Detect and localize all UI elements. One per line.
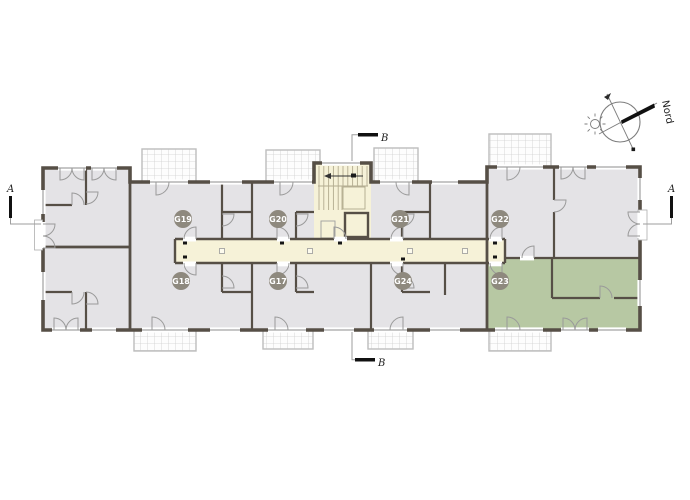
balcony xyxy=(134,330,196,351)
balcony xyxy=(266,150,320,183)
sun-icon xyxy=(585,114,606,135)
apartment-code: G19 xyxy=(174,215,192,224)
section-letter: B xyxy=(380,133,388,144)
north-arrow xyxy=(621,104,655,125)
apartment-code: G21 xyxy=(391,215,409,224)
balcony xyxy=(368,330,413,349)
balcony xyxy=(489,330,551,351)
floor-plan-page: G19 G20 G21 G22 G18 G17 G24 G23 xyxy=(0,0,690,500)
balcony xyxy=(489,134,551,168)
shaft-box xyxy=(321,221,335,238)
section-bar xyxy=(358,133,378,137)
stair-landing xyxy=(343,187,365,209)
apartment-code: G23 xyxy=(491,277,509,286)
section-bar xyxy=(9,196,12,218)
section-bar xyxy=(355,358,375,362)
apartment-code: G24 xyxy=(394,277,412,286)
section-bar xyxy=(670,196,673,218)
section-letter: A xyxy=(667,184,675,195)
section-marker-a-right: A xyxy=(643,184,675,224)
floor-plan-canvas: G19 G20 G21 G22 G18 G17 G24 G23 xyxy=(0,0,690,500)
section-letter: A xyxy=(6,184,14,195)
balcony xyxy=(263,330,313,349)
apartment-code: G17 xyxy=(269,277,287,286)
apartment-code: G22 xyxy=(491,215,509,224)
apartment-label-g22[interactable]: G22 xyxy=(491,210,509,228)
apartment-code: G18 xyxy=(172,277,190,286)
balcony xyxy=(374,148,418,183)
apartment-label-g23[interactable]: G23 xyxy=(491,272,509,290)
building-floors xyxy=(43,163,640,330)
section-letter: B xyxy=(377,358,385,369)
north-compass-icon: Nord xyxy=(585,93,675,151)
north-label: Nord xyxy=(659,99,675,125)
apartment-code: G20 xyxy=(269,215,287,224)
apartment-label-g17[interactable]: G17 xyxy=(269,272,287,290)
balcony xyxy=(142,149,196,183)
section-marker-a-left: A xyxy=(6,184,41,224)
